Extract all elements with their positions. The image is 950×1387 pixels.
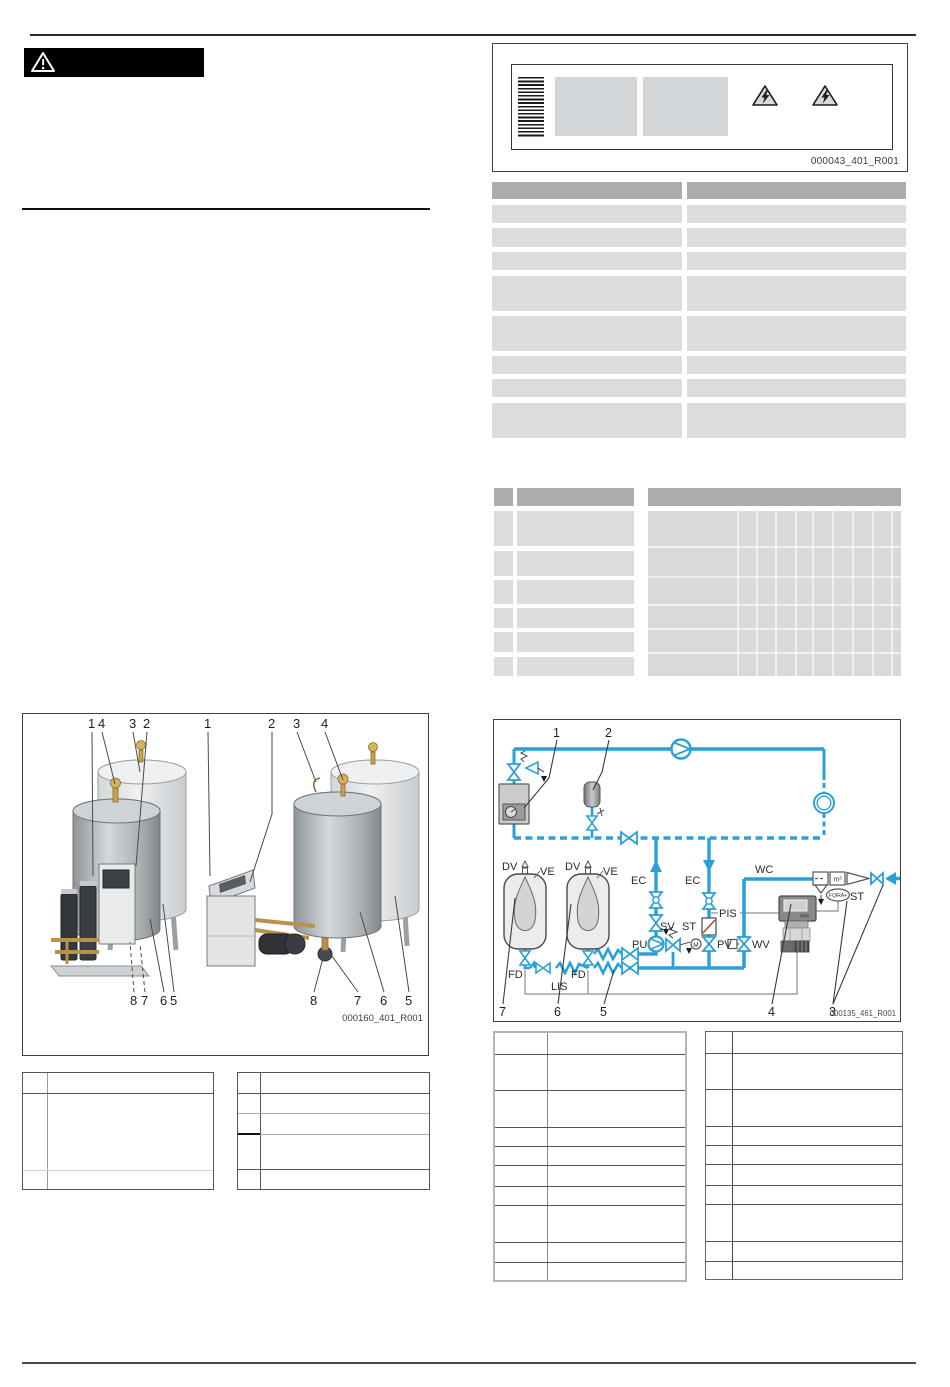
svg-text:DV: DV bbox=[565, 861, 581, 873]
svg-text:2: 2 bbox=[143, 716, 150, 731]
svg-text:4: 4 bbox=[768, 1005, 775, 1019]
tank-units-drawing: 1 4 3 2 1 2 3 4 8 7 6 5 8 7 6 5 000160_4… bbox=[23, 714, 428, 1055]
table-cell bbox=[687, 228, 906, 247]
schematic-legend-table-2 bbox=[705, 1031, 903, 1280]
table-header-cell bbox=[517, 488, 634, 506]
table-cell bbox=[492, 379, 682, 397]
legend-table-left bbox=[22, 1072, 214, 1190]
table-cell bbox=[494, 580, 513, 604]
table-cell bbox=[517, 511, 634, 546]
svg-text:PV: PV bbox=[717, 939, 732, 951]
svg-text:LIS: LIS bbox=[551, 981, 568, 993]
table-cell bbox=[494, 657, 513, 676]
svg-text:VE: VE bbox=[603, 866, 618, 878]
nameplate-field-block-1 bbox=[555, 77, 637, 136]
svg-text:7: 7 bbox=[354, 993, 361, 1008]
svg-text:FD: FD bbox=[571, 969, 586, 981]
table-cell bbox=[492, 403, 682, 438]
header-rule bbox=[30, 34, 916, 36]
svg-text:1: 1 bbox=[88, 716, 95, 731]
table-matrix-block bbox=[648, 511, 901, 676]
figure-caption: 000043_401_R001 bbox=[811, 156, 899, 167]
legend-table-right bbox=[237, 1072, 430, 1190]
schematic-legend-table-1 bbox=[493, 1031, 687, 1282]
control-unit bbox=[779, 896, 816, 952]
svg-text:FD: FD bbox=[508, 969, 523, 981]
table-cell bbox=[687, 205, 906, 223]
barcode-icon bbox=[518, 77, 544, 138]
table-cell bbox=[492, 276, 682, 311]
svg-text:ST: ST bbox=[850, 891, 864, 903]
table-cell bbox=[687, 276, 906, 311]
warning-banner bbox=[24, 48, 204, 77]
svg-text:6: 6 bbox=[380, 993, 387, 1008]
svg-text:WC: WC bbox=[755, 864, 773, 876]
svg-text:5: 5 bbox=[405, 993, 412, 1008]
table-cell bbox=[517, 608, 634, 628]
warning-triangle-icon bbox=[30, 51, 56, 79]
table-cell bbox=[517, 580, 634, 604]
table-cell bbox=[517, 551, 634, 576]
table-header-cell bbox=[492, 182, 682, 199]
svg-text:EC: EC bbox=[685, 875, 700, 887]
schematic-drawing: M m³ bbox=[494, 720, 900, 1021]
table-cell bbox=[492, 205, 682, 223]
svg-text:4: 4 bbox=[98, 716, 105, 731]
svg-text:EC: EC bbox=[631, 875, 646, 887]
svg-text:1: 1 bbox=[553, 726, 560, 740]
table-header-cell bbox=[494, 488, 513, 506]
svg-text:2: 2 bbox=[268, 716, 275, 731]
table-cell bbox=[492, 228, 682, 247]
svg-text:DV: DV bbox=[502, 861, 518, 873]
table-cell bbox=[494, 632, 513, 652]
svg-text:2: 2 bbox=[605, 726, 612, 740]
thick-mark bbox=[238, 1133, 260, 1136]
svg-text:WV: WV bbox=[752, 939, 770, 951]
document-page: 000043_401_R001 bbox=[0, 0, 950, 1387]
svg-text:6: 6 bbox=[554, 1005, 561, 1019]
electric-hazard-icon bbox=[752, 84, 778, 112]
table-cell bbox=[492, 356, 682, 374]
figure-nameplate: 000043_401_R001 bbox=[492, 43, 908, 172]
svg-text:SV: SV bbox=[660, 921, 675, 933]
table-cell bbox=[687, 252, 906, 270]
svg-text:7: 7 bbox=[141, 993, 148, 1008]
section-rule bbox=[22, 208, 430, 210]
svg-text:5: 5 bbox=[170, 993, 177, 1008]
figure-caption: 000135_461_R001 bbox=[830, 1009, 896, 1018]
svg-text:m³: m³ bbox=[833, 877, 842, 884]
table-cell bbox=[494, 608, 513, 628]
table-header-cell bbox=[648, 488, 901, 506]
table-cell bbox=[492, 252, 682, 270]
data-table-1 bbox=[492, 182, 906, 438]
figure-tank-units: 1 4 3 2 1 2 3 4 8 7 6 5 8 7 6 5 000160_4… bbox=[22, 713, 429, 1056]
svg-text:PU: PU bbox=[632, 939, 647, 951]
svg-text:3: 3 bbox=[293, 716, 300, 731]
table-cell bbox=[494, 551, 513, 576]
table-cell bbox=[517, 657, 634, 676]
svg-text:6: 6 bbox=[160, 993, 167, 1008]
table-cell bbox=[687, 316, 906, 351]
data-table-2 bbox=[494, 488, 901, 676]
svg-text:FQIRA+: FQIRA+ bbox=[829, 893, 847, 899]
tank-unit-left bbox=[51, 741, 186, 977]
svg-text:8: 8 bbox=[310, 993, 317, 1008]
tank-unit-right bbox=[207, 743, 419, 967]
svg-text:ST: ST bbox=[682, 921, 696, 933]
table-cell bbox=[494, 511, 513, 546]
figure-caption: 000160_401_R001 bbox=[342, 1013, 423, 1024]
svg-text:7: 7 bbox=[499, 1005, 506, 1019]
table-header-cell bbox=[687, 182, 906, 199]
svg-text:3: 3 bbox=[129, 716, 136, 731]
expansion-vessels bbox=[504, 861, 609, 949]
svg-text:4: 4 bbox=[321, 716, 328, 731]
table-cell bbox=[687, 379, 906, 397]
svg-text:PIS: PIS bbox=[719, 908, 737, 920]
figure-schematic: M m³ bbox=[493, 719, 901, 1022]
svg-text:5: 5 bbox=[600, 1005, 607, 1019]
heat-generator bbox=[499, 784, 529, 824]
svg-text:M: M bbox=[693, 942, 698, 949]
table-cell bbox=[687, 356, 906, 374]
nameplate-field-block-2 bbox=[643, 77, 728, 136]
svg-text:1: 1 bbox=[204, 716, 211, 731]
table-cell bbox=[687, 403, 906, 438]
table-cell bbox=[492, 316, 682, 351]
table-cell bbox=[517, 632, 634, 652]
svg-text:VE: VE bbox=[540, 866, 555, 878]
footer-rule bbox=[22, 1362, 916, 1364]
svg-text:8: 8 bbox=[130, 993, 137, 1008]
electric-hazard-icon bbox=[812, 84, 838, 112]
